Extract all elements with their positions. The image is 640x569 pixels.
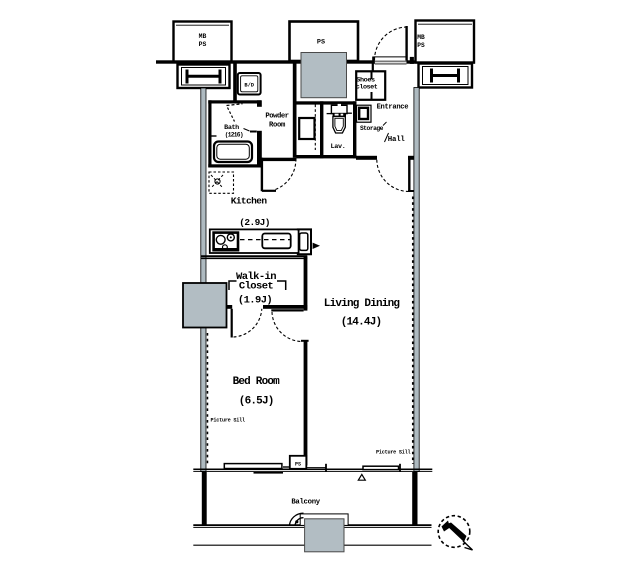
svg-text:(14.4J): (14.4J) [341,317,382,329]
svg-text:Powder: Powder [265,112,288,120]
svg-text:(1216): (1216) [225,132,243,139]
svg-text:MB: MB [417,34,425,41]
svg-text:Room: Room [269,122,286,130]
svg-text:Balcony: Balcony [291,498,320,506]
svg-text:Picture Sill: Picture Sill [211,418,245,424]
svg-text:Lav.: Lav. [330,143,345,151]
svg-text:(1.9J): (1.9J) [238,295,272,307]
svg-text:(6.5J): (6.5J) [239,396,274,408]
svg-text:Bed Room: Bed Room [233,376,281,388]
svg-text:Closet: Closet [239,281,274,293]
svg-text:PS: PS [295,462,301,468]
svg-text:Picture Sill: Picture Sill [376,449,410,455]
svg-text:PS: PS [417,42,425,49]
svg-text:B/D: B/D [244,83,254,89]
svg-text:closet: closet [356,84,378,92]
svg-text:Kitchen: Kitchen [231,195,268,206]
svg-text:Living Dining: Living Dining [324,298,400,310]
svg-text:Hall: Hall [388,136,406,144]
svg-text:Storage: Storage [360,125,384,132]
svg-text:(2.9J): (2.9J) [239,217,270,228]
svg-text:PS: PS [317,39,325,47]
svg-text:PS: PS [199,41,207,48]
svg-text:Entrance: Entrance [377,104,409,112]
svg-text:MB: MB [199,33,207,40]
